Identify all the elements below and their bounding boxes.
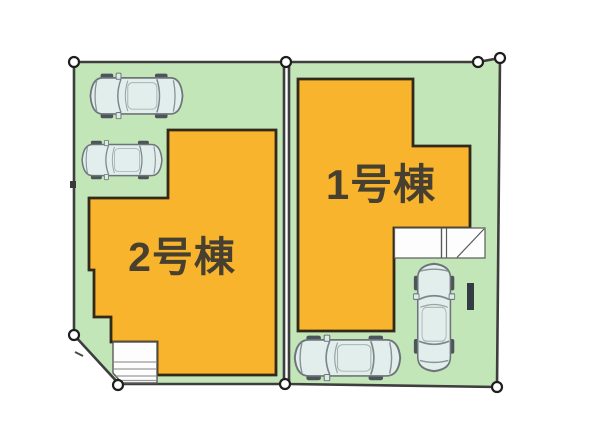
entrance-steps-building-2 (113, 342, 157, 383)
boundary-tick (75, 352, 83, 356)
boundary-marker (492, 382, 502, 392)
boundary-marker (495, 53, 505, 63)
boundary-marker (473, 57, 483, 67)
car-vertical-right (413, 264, 454, 371)
boundary-marker (69, 330, 79, 340)
boundary-marker (113, 380, 123, 390)
boundary-marker (69, 57, 79, 67)
car-bottom-center (295, 335, 400, 381)
boundary-marker (281, 57, 291, 67)
site-plan-svg: 1号棟 2号棟 (0, 0, 600, 435)
boundary-point-square (70, 181, 76, 188)
entrance-approach-building-1 (395, 228, 486, 258)
building-1-label: 1号棟 (326, 161, 436, 208)
car-mid-left (82, 140, 162, 179)
car-top-left (90, 73, 182, 119)
building-2-label: 2号棟 (128, 234, 236, 280)
wall-segment (467, 283, 474, 310)
boundary-marker (280, 379, 290, 389)
site-plan-canvas: 1号棟 2号棟 (0, 0, 600, 435)
